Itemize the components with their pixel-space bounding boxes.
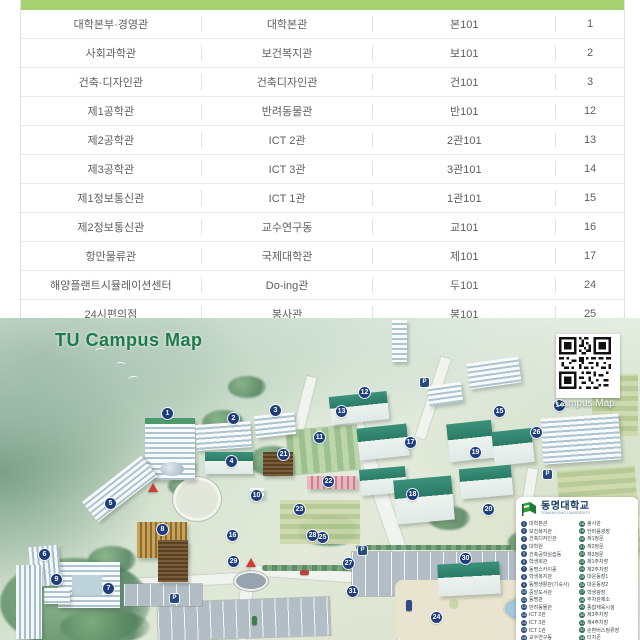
bird-icon [116,361,127,368]
table-cell: ICT 3관 [202,161,374,177]
hedge [356,545,534,550]
gate-alert-marker [148,483,158,492]
legend-item-number: 21 [579,544,585,550]
legend-item: 30제3주차장 [579,611,634,619]
table-row: 제1공학관반려동물관반10112 [21,97,624,126]
legend-item-label: ICT 3관 [529,619,546,626]
legend-item-number: 23 [579,559,585,565]
map-marker: 12 [359,387,370,398]
bus [406,600,412,611]
table-cell: 본101 [373,16,556,32]
table-cell: 교수연구동 [202,219,374,235]
map-marker: 27 [343,558,354,569]
legend-item-number: 32 [579,627,585,633]
map-title: TU Campus Map [55,330,203,351]
map-marker: 8 [157,524,168,535]
table-cell: 15 [556,192,624,204]
legend-item-number: 29 [579,604,585,610]
table-body: 대학본부·경영관대학본관본1011사회과학관보건복지관보1012건축·디자인관건… [21,10,624,329]
table-cell: 16 [556,221,624,233]
legend-item: 6학생회관 [521,558,576,566]
qr-code [556,334,620,398]
table-row: 제2공학관ICT 2관2관10113 [21,126,624,155]
legend-item-number: 2 [521,528,527,534]
map-marker: 21 [278,449,289,460]
parking-badge: P [358,546,367,555]
legend-item-label: 동명스카이홀 [529,566,557,573]
green-roof-building [437,561,501,596]
table-cell: 제101 [373,248,556,264]
legend-item: 5건축공학실습동 [521,550,576,558]
legend-left-column: 1대학본관2보건복지관3건축디자인관4대학원5건축공학실습동6학생회관7동명스카… [521,520,576,640]
legend-item-label: 대학원 [529,543,543,550]
car [300,570,309,575]
legend-item-number: 27 [579,589,585,595]
table-cell: 대학본부·경영관 [21,16,202,32]
table-row: 제1정보통신관ICT 1관1관10115 [21,184,624,213]
bus [252,616,257,625]
map-marker: 13 [336,406,347,417]
corner-tower [16,565,42,639]
table-row: 제3공학관ICT 3관3관10114 [21,155,624,184]
legend-item-number: 26 [579,582,585,588]
legend-item: 24제2주차장 [579,566,634,574]
legend-item-label: 제2정문 [587,543,604,550]
map-marker: 30 [460,553,471,564]
legend-item-number: 20 [579,536,585,542]
legend-item-number: 13 [521,612,527,618]
parking-badge: P [420,378,429,387]
legend-item: 21제2정문 [579,543,634,551]
legend-item: 33터치존 [579,634,634,640]
legend-item-label: 제3정문 [587,551,604,558]
dome [160,462,184,476]
table-cell: 제2정보통신관 [21,219,202,235]
legend-item: 28주차관제소 [579,596,634,604]
map-legend: 동명대학교 TONGMYONG UNIVERSITY 1대학본관2보건복지관3건… [516,497,638,640]
table-row: 대학본부·경영관대학본관본1011 [21,10,624,39]
tower-building [392,320,407,362]
tree-cluster [228,376,266,398]
map-marker: 7 [103,583,114,594]
legend-item: 9동명생활관(기숙사) [521,581,576,589]
courtyard [72,575,102,595]
table-cell: 해양플랜트시뮬레이션센터 [21,277,202,293]
map-marker: 3 [270,405,281,416]
legend-item-label: 보건복지관 [529,528,552,535]
map-marker: 17 [405,437,416,448]
table-header-bar [21,0,624,10]
map-marker: 26 [531,427,542,438]
table-cell: 대학본관 [202,16,374,32]
table-cell: 두101 [373,277,556,293]
legend-item-label: 순환버스정류장 [587,627,619,634]
table-cell: 건축디자인관 [202,74,374,90]
gate-alert-marker [246,558,256,567]
legend-item-label: 제2주차장 [587,566,608,573]
legend-item-label: 동명생활관(기숙사) [529,581,569,588]
legend-item-label: 동명관 [529,596,543,603]
legend-item-label: 대학본관 [529,520,547,527]
legend-item: 15ICT 1관 [521,626,576,634]
legend-item-number: 24 [579,566,585,572]
map-marker: 5 [105,498,116,509]
legend-item: 4대학원 [521,543,576,551]
qr-caption: Campus Map [548,398,622,409]
green-roof-building [393,476,455,525]
table-row: 사회과학관보건복지관보1012 [21,39,624,68]
table-cell: 14 [556,163,624,175]
map-marker: 31 [347,586,358,597]
map-marker: 20 [483,504,494,515]
legend-item-number: 10 [521,589,527,595]
table-cell: 보건복지관 [202,45,374,61]
legend-item-label: 터치존 [587,634,601,640]
central-plaza [176,480,218,518]
legend-item: 26대운동장2 [579,581,634,589]
map-marker: 1 [162,408,173,419]
legend-item: 10중앙도서관 [521,588,576,596]
legend-item-label: 한마음광장 [587,528,610,535]
table-cell: 제1정보통신관 [21,190,202,206]
legend-item-label: 제1정문 [587,535,604,542]
map-marker: 4 [226,456,237,467]
table-cell: 보101 [373,45,556,61]
legend-item: 29종합체육시설 [579,604,634,612]
legend-item: 31제4주차장 [579,619,634,627]
legend-item-label: 종합체육시설 [587,604,615,611]
campus-map-page: { "table": { "rows": [ {"old":"대학본부·경영관"… [0,0,640,640]
map-marker: 15 [494,406,505,417]
legend-item-label: 교수연구동 [529,634,552,640]
legend-item-number: 8 [521,574,527,580]
legend-item: 2보건복지관 [521,528,576,536]
building-table: 대학본부·경영관대학본관본1011사회과학관보건복지관보1012건축·디자인관건… [20,0,625,318]
legend-item-label: 제1주차장 [587,558,608,565]
legend-item-label: 중앙도서관 [529,589,552,596]
legend-item-label: 학생회관 [529,558,547,565]
map-marker: 18 [407,489,418,500]
parking-badge: P [170,594,179,603]
legend-item-number: 4 [521,544,527,550]
table-cell: 사회과학관 [21,45,202,61]
legend-item-label: 학생복지관 [529,573,552,580]
legend-item-number: 16 [521,635,527,640]
table-cell: Do-ing관 [202,277,374,293]
legend-item-label: 제4주차장 [587,619,608,626]
table-cell: 3관101 [373,161,556,177]
table-cell: 2 [556,47,624,59]
building [82,456,157,523]
legend-item-number: 19 [579,528,585,534]
table-cell: 1 [556,18,624,30]
legend-item: 8학생복지관 [521,573,576,581]
university-name-en: TONGMYONG UNIVERSITY [541,512,590,516]
building [195,421,252,451]
map-marker: 29 [228,556,239,567]
building [44,588,70,604]
legend-item: 18봉사관 [579,520,634,528]
table-cell: 제3공학관 [21,161,202,177]
legend-item-number: 15 [521,627,527,633]
map-marker: 10 [251,490,262,501]
legend-item: 11동명관 [521,596,576,604]
map-marker: 9 [51,574,62,585]
table-cell: 반려동물관 [202,103,374,119]
map-marker: 23 [294,504,305,515]
table-cell: 반101 [373,103,556,119]
legend-item: 1대학본관 [521,520,576,528]
map-marker: 16 [227,530,238,541]
university-name-block: 동명대학교 TONGMYONG UNIVERSITY [541,502,590,516]
legend-item-label: 주차관제소 [587,596,610,603]
table-cell: ICT 1관 [202,190,374,206]
green-roof-building [356,423,409,460]
map-marker: 11 [314,432,325,443]
table-cell: 2관101 [373,132,556,148]
legend-item: 16교수연구동 [521,634,576,640]
legend-right-column: 18봉사관19한마음광장20제1정문21제2정문22제3정문23제1주차장24제… [579,520,634,640]
table-row: 해양플랜트시뮬레이션센터Do-ing관두10124 [21,271,624,300]
table-cell: 13 [556,134,624,146]
legend-item-number: 3 [521,536,527,542]
parking-badge: P [543,470,552,479]
legend-item-number: 9 [521,582,527,588]
legend-item-number: 1 [521,521,527,527]
legend-item-number: 7 [521,566,527,572]
legend-item-number: 14 [521,620,527,626]
legend-item-label: 대운동장2 [587,581,608,588]
legend-item: 25대운동장1 [579,573,634,581]
legend-item-label: 학생광장 [587,589,605,596]
table-cell: ICT 2관 [202,132,374,148]
university-logo-icon [521,502,537,516]
legend-item: 12반려동물관 [521,604,576,612]
table-row: 제2정보통신관교수연구동교10116 [21,213,624,242]
table-cell: 건101 [373,74,556,90]
map-marker: 2 [228,413,239,424]
legend-item-number: 11 [521,597,527,603]
legend-item: 32순환버스정류장 [579,626,634,634]
table-cell: 항만물류관 [21,248,202,264]
table-cell: 1관101 [373,190,556,206]
table-cell: 교101 [373,219,556,235]
legend-item: 14ICT 3관 [521,619,576,627]
green-roof-building [491,428,534,466]
legend-item-number: 12 [521,604,527,610]
legend-item: 19한마음광장 [579,528,634,536]
legend-item: 23제1주차장 [579,558,634,566]
table-cell: 3 [556,76,624,88]
legend-item-label: ICT 2관 [529,611,546,618]
qr-pattern [559,337,611,389]
legend-item-number: 18 [579,521,585,527]
table-row: 항만물류관국제대학관제10117 [21,242,624,271]
map-marker: 22 [323,476,334,487]
table-cell: 제2공학관 [21,132,202,148]
map-marker: 25 [317,532,328,543]
parking-lot [124,584,202,606]
slat-building [158,540,188,582]
legend-item-label: 대운동장1 [587,573,608,580]
legend-item: 3건축디자인관 [521,535,576,543]
legend-item: 22제3정문 [579,550,634,558]
campus-map-image[interactable]: TU Campus Map [0,318,640,640]
legend-item-number: 28 [579,597,585,603]
table-row: 건축·디자인관건축디자인관건1013 [21,68,624,97]
legend-item: 7동명스카이홀 [521,566,576,574]
map-marker: 28 [307,530,318,541]
legend-item-number: 25 [579,574,585,580]
legend-item-number: 22 [579,551,585,557]
legend-item-label: ICT 1관 [529,627,546,634]
legend-item-number: 5 [521,551,527,557]
legend-item: 20제1정문 [579,535,634,543]
green-roof-building [459,465,513,499]
legend-item-label: 봉사관 [587,520,601,527]
table-cell: 제1공학관 [21,103,202,119]
map-marker: 24 [431,612,442,623]
table-cell: 건축·디자인관 [21,74,202,90]
table-cell: 17 [556,250,624,262]
legend-item-label: 건축공학실습동 [529,551,561,558]
table-cell: 12 [556,105,624,117]
table-cell: 24 [556,279,624,291]
forest [60,610,150,640]
legend-item-number: 33 [579,635,585,640]
table-cell: 국제대학관 [202,248,374,264]
map-marker: 6 [39,549,50,560]
legend-columns: 1대학본관2보건복지관3건축디자인관4대학원5건축공학실습동6학생회관7동명스카… [521,520,634,640]
legend-item-label: 건축디자인관 [529,535,557,542]
legend-item-number: 6 [521,559,527,565]
legend-item-label: 반려동물관 [529,604,552,611]
white-slab-building [540,413,621,464]
legend-item: 27학생광장 [579,588,634,596]
roundabout [236,573,266,589]
legend-header: 동명대학교 TONGMYONG UNIVERSITY [521,502,634,516]
legend-item-number: 30 [579,612,585,618]
legend-item: 13ICT 2관 [521,611,576,619]
legend-item-label: 제3주차장 [587,611,608,618]
legend-item-number: 31 [579,620,585,626]
map-marker: 19 [470,447,481,458]
